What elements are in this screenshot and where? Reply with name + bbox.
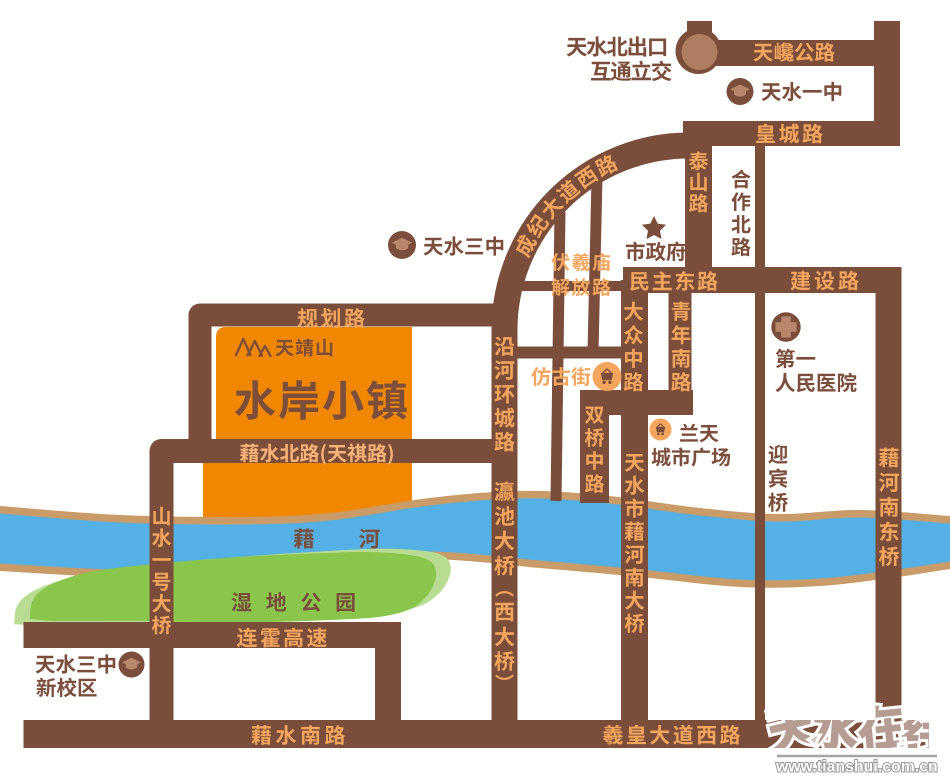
svg-text:www.tianshui.com.cn: www.tianshui.com.cn xyxy=(775,759,938,776)
